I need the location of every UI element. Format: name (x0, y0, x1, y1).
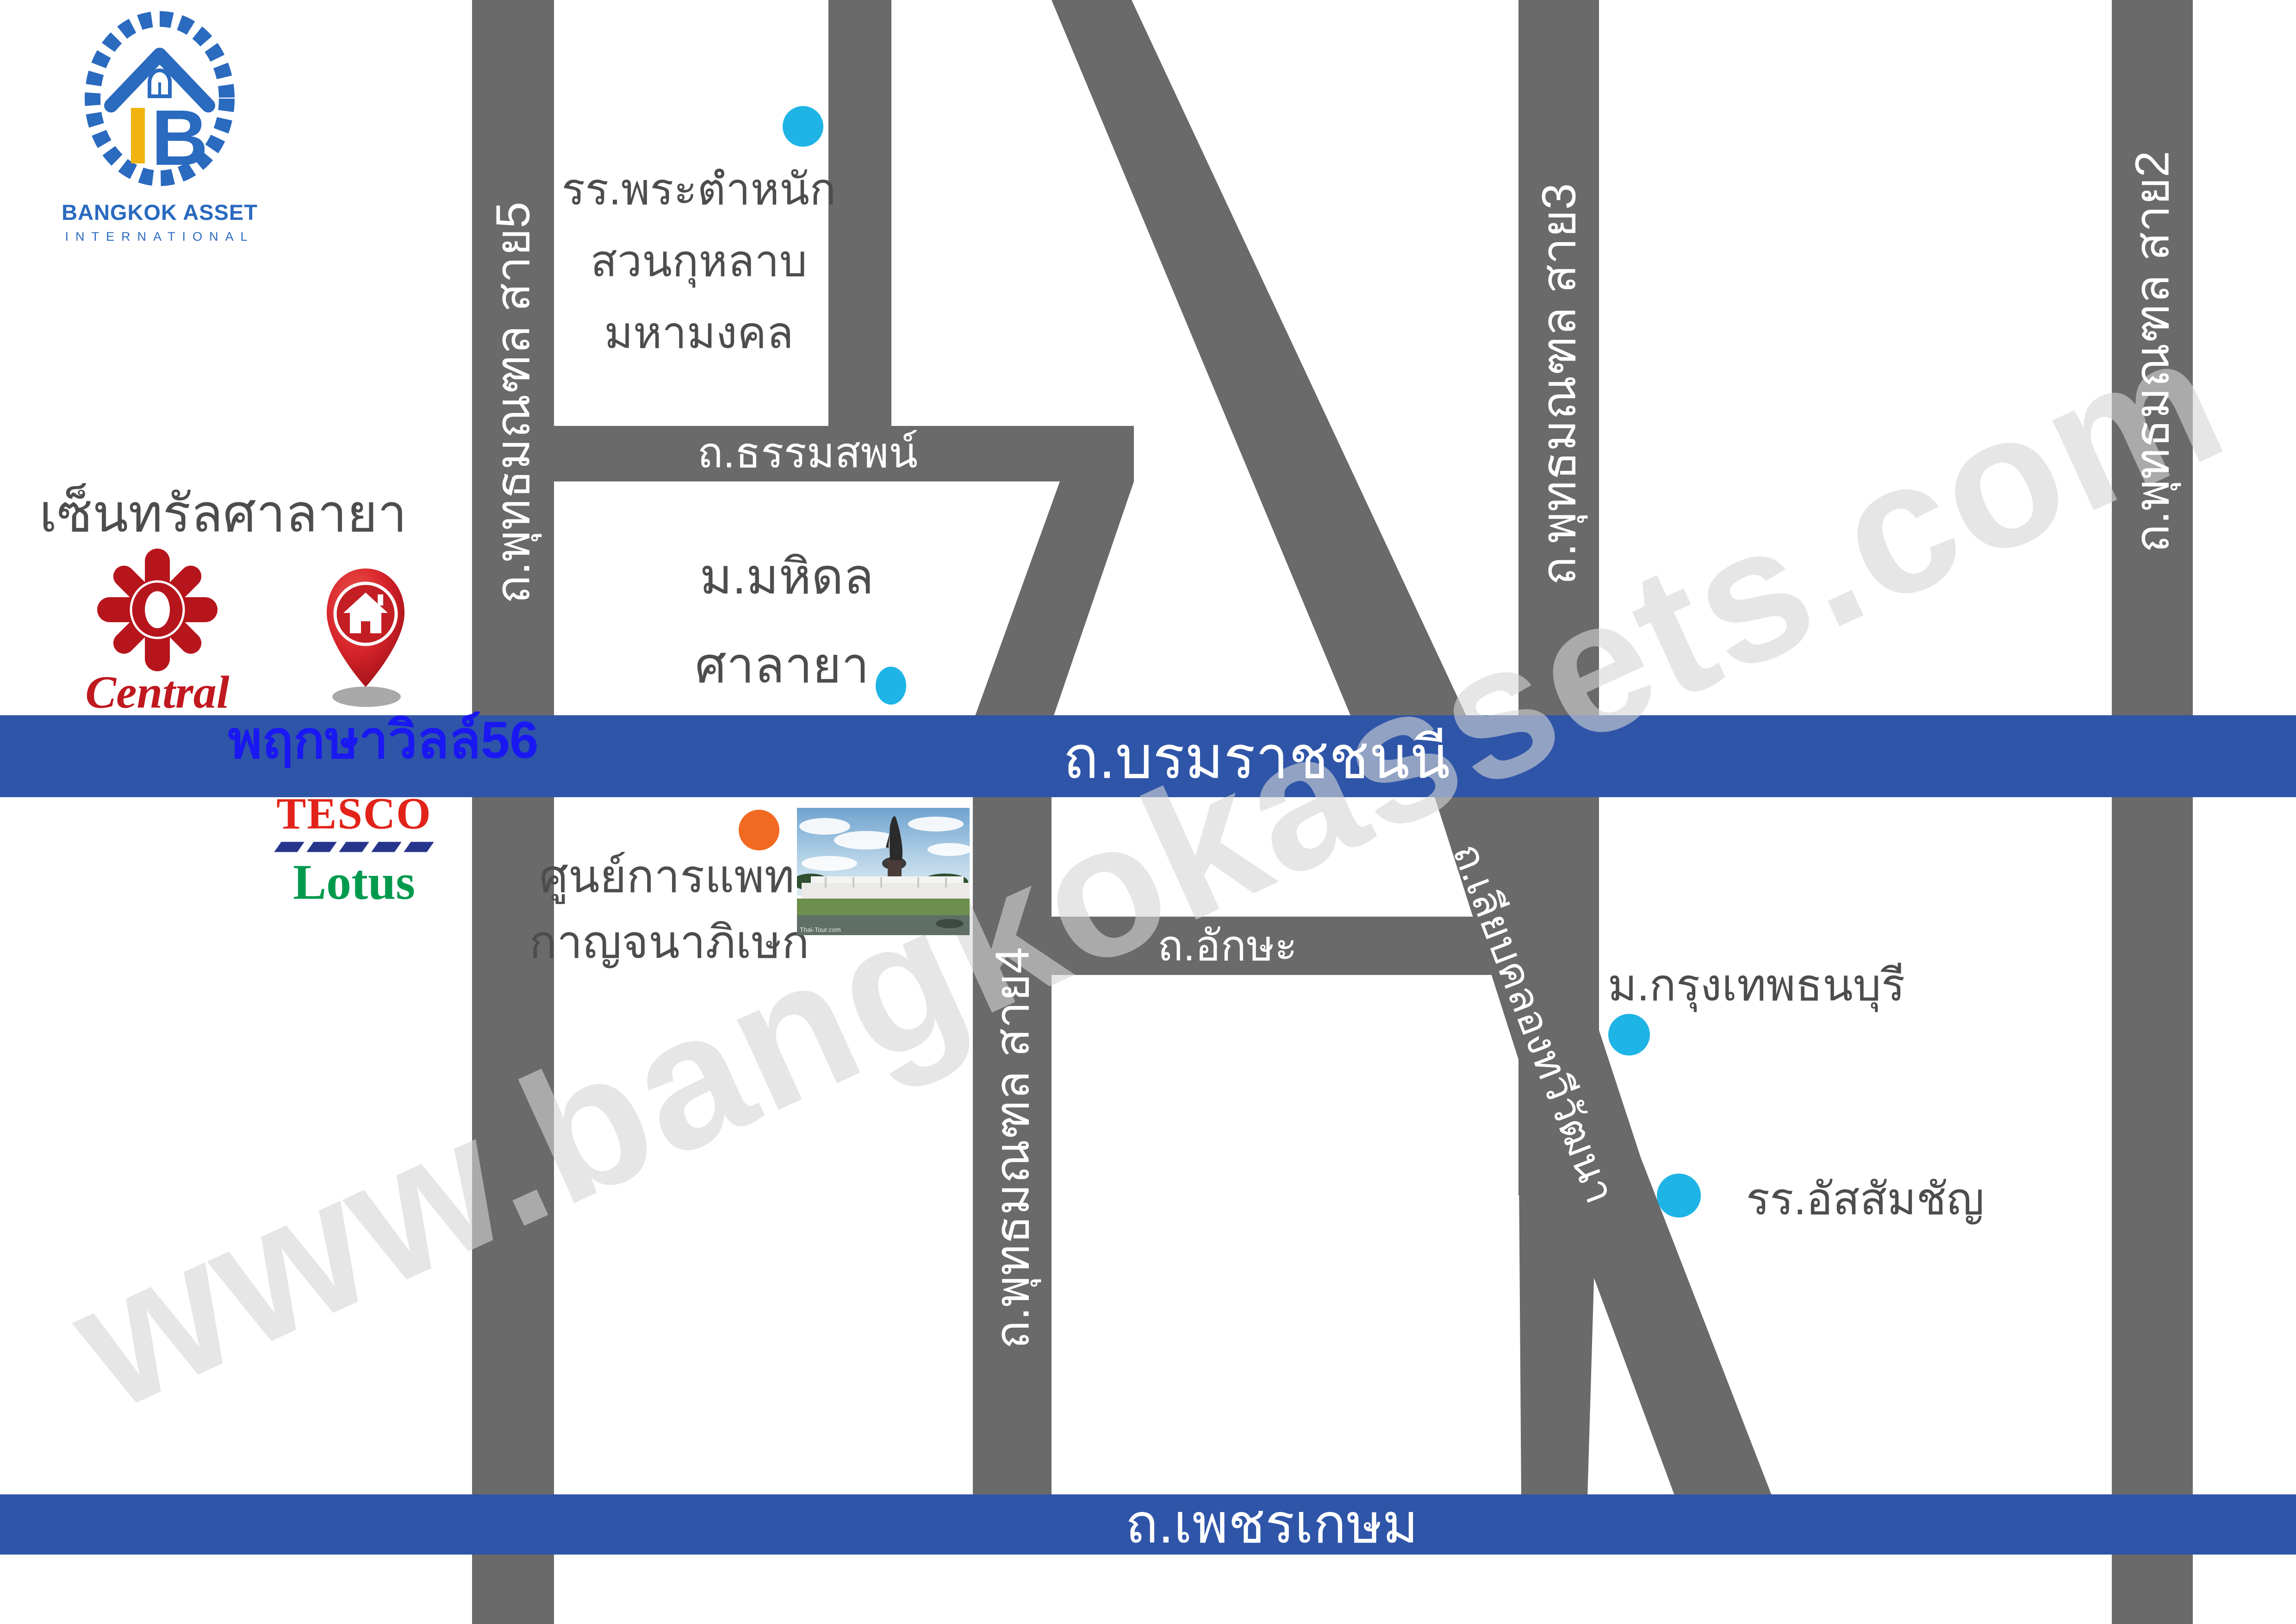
road-label-sai4: ถ.พุทธมณฑล สาย4 (975, 947, 1050, 1349)
road-label-aksa: ถ.อักษะ (1157, 912, 1297, 980)
highway-label-borommaratchachonnani: ถ.บรมราชชนนี (1063, 711, 1450, 805)
medical-line2: กาญจนาภิเษก (529, 905, 809, 978)
location-pin-icon (319, 566, 412, 712)
phutthamonthon-photo: Thai-Tour.com (797, 808, 970, 935)
road-top-stub (828, 0, 891, 472)
medical-line1: ศูนย์การแพทย์ (539, 839, 821, 912)
bkk-thonburi-label: ม.กรุงเทพธนบุรี (1608, 950, 1905, 1020)
road-diagonal-upper (1052, 0, 1467, 718)
tesco-text: TESCO (273, 788, 435, 839)
school-label: รร.พระตำหนัก สวนกุหลาบ มหามงคล (561, 154, 836, 369)
school-marker-dot (783, 106, 823, 147)
mahidol-line1: ม.มหิดล (700, 537, 874, 616)
lotus-text: Lotus (273, 854, 435, 912)
logo-title: BANGKOK ASSET (35, 200, 285, 225)
school-line3: มหามงคล (561, 298, 836, 369)
road-connector (973, 481, 1134, 722)
logo-letter-i (131, 108, 145, 163)
photo-caption: Thai-Tour.com (800, 926, 841, 933)
mahidol-marker-dot (876, 667, 906, 705)
road-label-sai2: ถ.พุทธมณฑล สาย2 (2115, 151, 2190, 553)
white-platform (802, 876, 970, 899)
lawn (797, 899, 970, 915)
central-logo-text: Central (85, 666, 229, 719)
bangkok-asset-logo: B BANGKOK ASSET INTERNATIONAL (35, 8, 285, 244)
map-canvas: www.bangkokassets.com ถ.พุทธมณฑล สาย5 ถ.… (0, 0, 2296, 1624)
bangkok-asset-logo-icon: B (72, 8, 248, 194)
school-line2: สวนกุหลาบ (561, 226, 836, 298)
assumption-marker-dot (1657, 1174, 1701, 1218)
road-label-thammasop: ถ.ธรรมสพน์ (697, 418, 918, 487)
assumption-label: รร.อัสสัมชัญ (1746, 1164, 1985, 1234)
bkk-thonburi-marker-dot (1608, 1014, 1650, 1056)
road-label-sai5: ถ.พุทธมณฑล สาย5 (475, 202, 551, 604)
mahidol-line2: ศาลายา (695, 626, 869, 705)
central-salaya-title: เซ็นทรัลศาลายา (39, 471, 407, 555)
tesco-lotus-logo: TESCO Lotus (273, 788, 435, 912)
logo-subtitle: INTERNATIONAL (35, 230, 285, 244)
central-flower-icon (95, 546, 220, 674)
road-label-sai3: ถ.พุทธมณฑล สาย3 (1521, 183, 1597, 586)
highway-label-phetkasem: ถ.เพชรเกษม (1125, 1480, 1418, 1567)
school-line1: รร.พระตำหนัก (561, 154, 836, 226)
pruksa-ville-label: พฤกษาวิลล์56 (228, 699, 539, 781)
logo-letter-b: B (151, 94, 208, 182)
tesco-dashes-icon (273, 842, 435, 853)
